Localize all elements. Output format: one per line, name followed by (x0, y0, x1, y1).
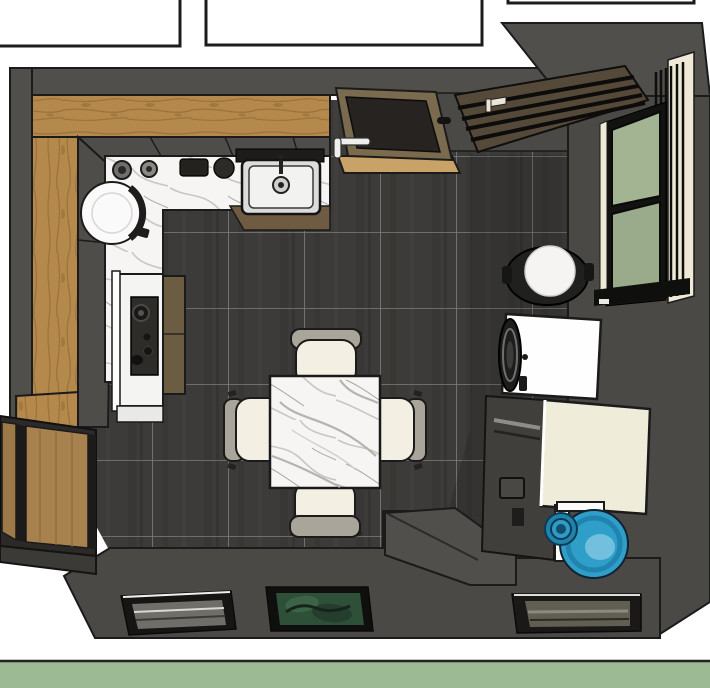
floor-vent-right (512, 594, 641, 633)
adjacent-room-outline-middle (206, 0, 482, 45)
window-glass-lower (612, 202, 660, 296)
window-left-trim (600, 121, 607, 305)
plant-opening-middle (266, 587, 373, 631)
wood-countertop-top (32, 95, 330, 137)
cream-cabinet[interactable] (541, 400, 650, 514)
adjacent-room-outline-left (0, 0, 180, 46)
sill-end-cap (599, 299, 609, 304)
render-viewport (0, 0, 710, 688)
ground-strip (0, 661, 710, 688)
left-wall (10, 68, 32, 440)
range-cooktop[interactable] (112, 271, 163, 422)
kitchen-sink[interactable] (242, 155, 320, 215)
sliding-door-left[interactable] (0, 416, 96, 574)
adjacent-room-outline-right (508, 0, 694, 3)
chair-south[interactable] (290, 482, 362, 537)
tall-wood-cabinet[interactable] (163, 276, 185, 394)
dining-table[interactable] (270, 376, 380, 488)
washing-machine[interactable] (499, 314, 601, 399)
floor-vent-left (121, 591, 236, 635)
wall-latch-slot (437, 117, 451, 124)
